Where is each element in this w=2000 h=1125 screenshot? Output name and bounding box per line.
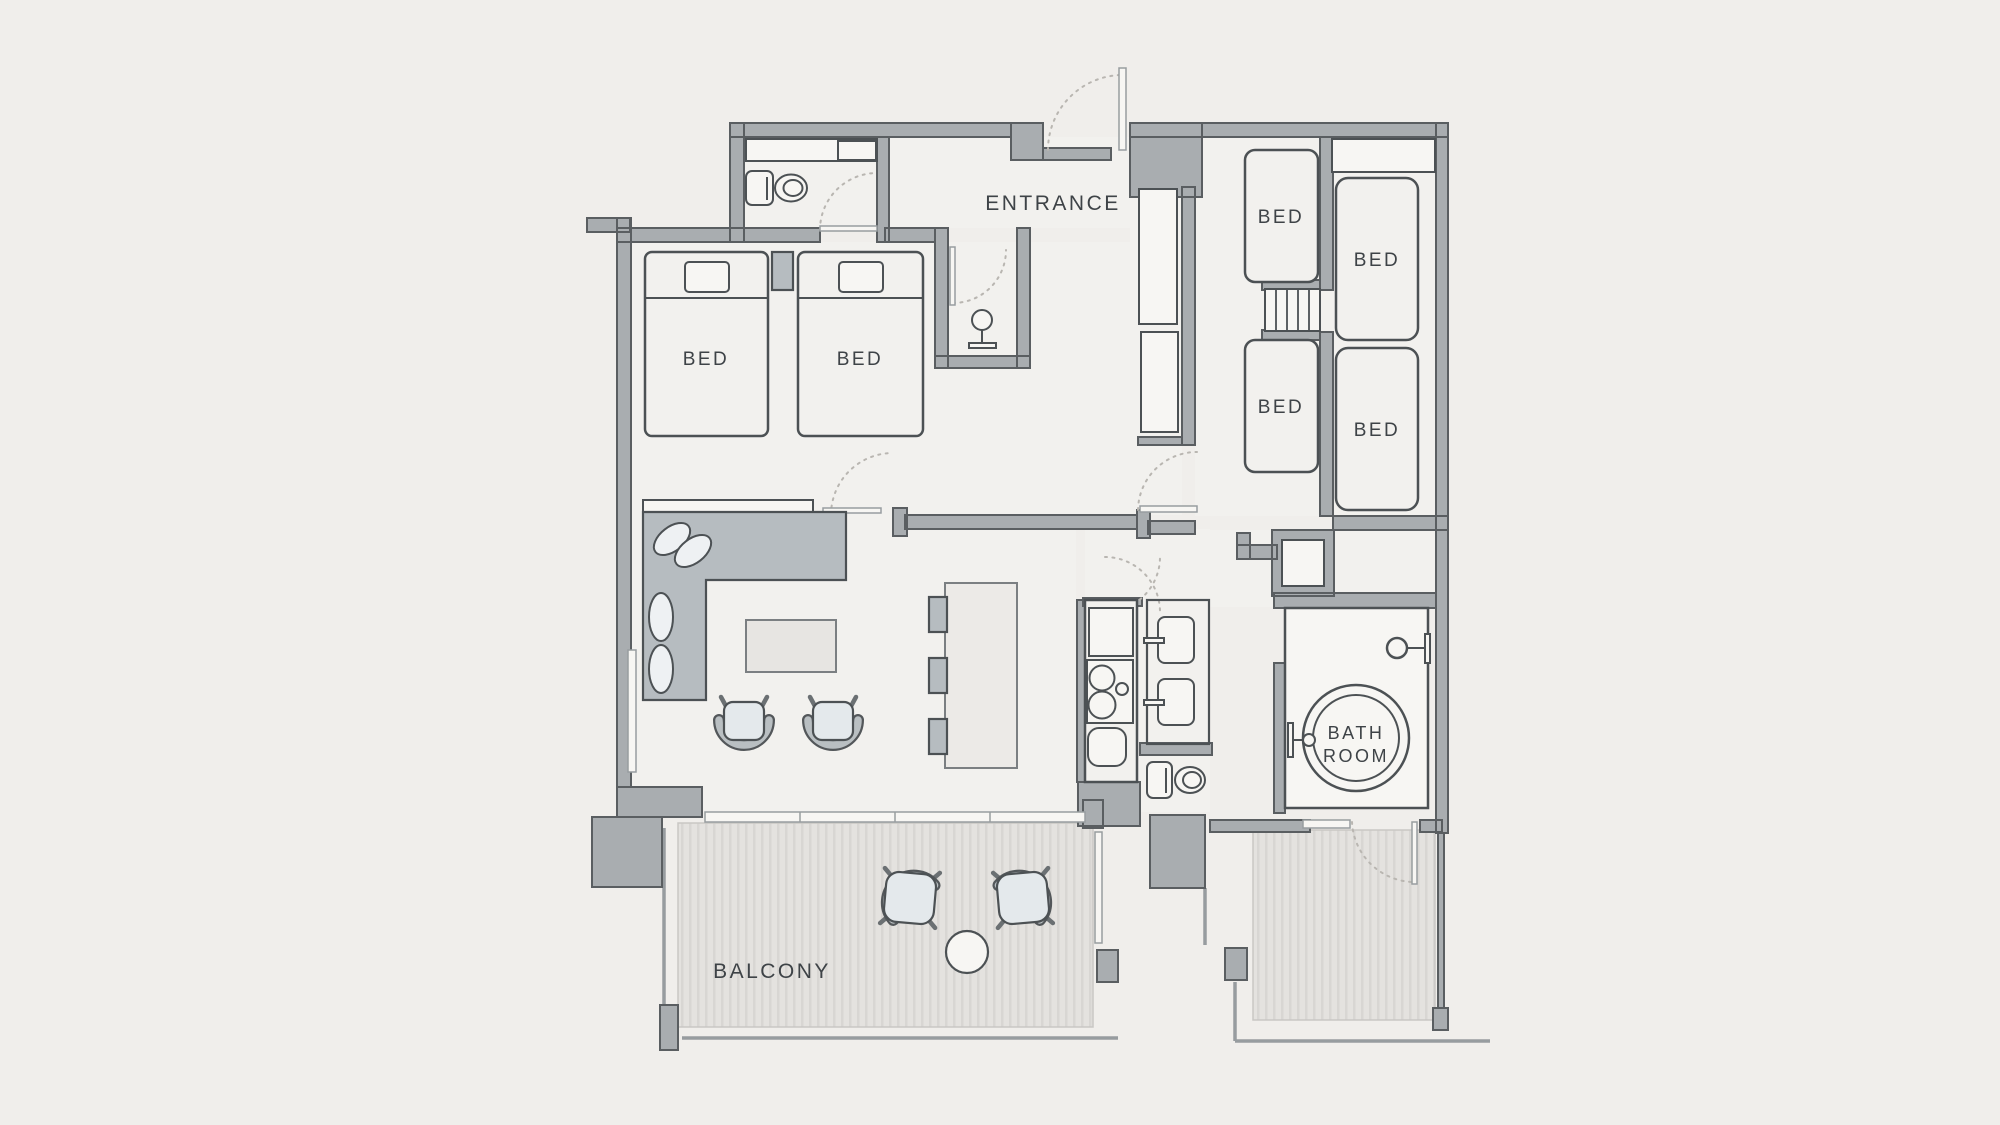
bed-label: BED	[837, 349, 884, 370]
bed-icon: BED	[1245, 150, 1318, 282]
closet-shelf	[1332, 139, 1435, 172]
entrance-label: ENTRANCE	[985, 192, 1121, 215]
bed-label: BED	[1258, 397, 1305, 418]
bed-icon: BED	[1245, 340, 1318, 472]
stairs-icon	[1265, 289, 1320, 331]
bathroom: BATH ROOM	[1285, 608, 1430, 808]
balcony2-floor	[1253, 830, 1435, 1020]
floor-plan-page: BED BED BED BED BED BED	[0, 0, 2000, 1125]
window-icon	[1303, 820, 1350, 828]
bed-icon: BED	[1336, 178, 1418, 340]
bed-label: BED	[1354, 250, 1401, 271]
svg-text:BATH: BATH	[1328, 723, 1385, 743]
bed-icon: BED	[645, 252, 768, 436]
svg-text:ROOM: ROOM	[1323, 746, 1389, 766]
entrance-door-leaf	[1119, 68, 1126, 150]
dining-island	[945, 583, 1017, 768]
toilet-shelf-box	[838, 141, 876, 160]
balcony-table	[946, 931, 988, 973]
balcony-floor	[678, 823, 1093, 1027]
toilet-threshold	[820, 226, 877, 231]
stove-icon	[1087, 660, 1133, 723]
balcony-label: BALCONY	[713, 960, 831, 983]
bed-icon: BED	[798, 252, 923, 436]
bed-label: BED	[1258, 207, 1305, 228]
bed-label: BED	[683, 349, 730, 370]
floor-plan: BED BED BED BED BED BED	[0, 0, 2000, 1125]
nightstand	[772, 252, 793, 290]
counter-box	[1089, 608, 1133, 656]
balcony2-door-leaf	[1412, 822, 1417, 884]
corridor-cabinet	[1141, 332, 1178, 432]
kitchen-sink-icon	[1088, 728, 1126, 766]
stool	[929, 597, 947, 632]
coffee-table	[746, 620, 836, 672]
armchair	[808, 697, 858, 745]
bed-label: BED	[1354, 420, 1401, 441]
stool	[929, 719, 947, 754]
hall-closet-box	[1282, 540, 1324, 586]
kitchen	[1085, 600, 1137, 782]
stool	[929, 658, 947, 693]
hall-door-leaf	[1140, 506, 1197, 512]
balcony-side-leaf	[1095, 832, 1102, 943]
armchair	[719, 697, 769, 745]
window-icon	[628, 650, 636, 772]
corridor-cabinet	[1139, 189, 1177, 324]
bed-icon: BED	[1336, 348, 1418, 510]
closet-door-leaf	[950, 247, 955, 305]
